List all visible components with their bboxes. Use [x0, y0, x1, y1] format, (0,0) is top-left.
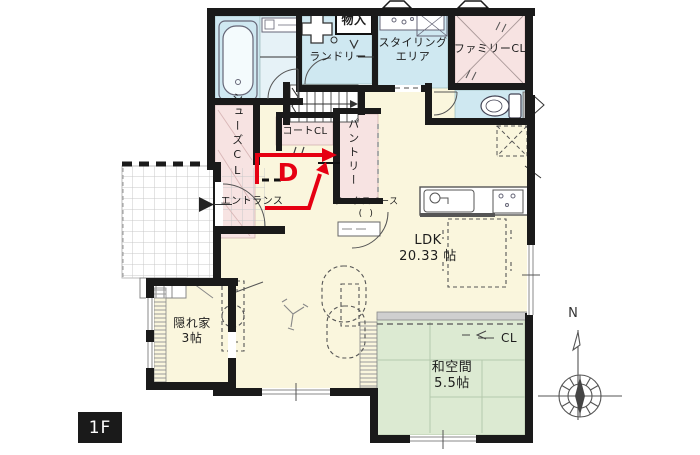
label-ldk: LDK20.33 帖	[399, 233, 457, 266]
label-pantry: パントリー	[346, 118, 360, 188]
label-laundry: ランドリー	[309, 50, 367, 64]
label-workspace: ワークスペース	[333, 197, 398, 208]
floorplan-page: 物入 ランドリー スタイリングエリア ファミリーCL シューズCL コートCL …	[0, 0, 700, 455]
label-styling-area: スタイリングエリア	[379, 36, 448, 64]
north-label: N	[568, 306, 578, 321]
label-entrance: エントランス	[221, 196, 284, 209]
label-japanese-room: 和空間5.5帖	[432, 360, 473, 393]
label-coat-closet: コートCL	[282, 126, 327, 139]
label-hideaway: 隠れ家3帖	[173, 316, 211, 346]
route-marker-d: D	[278, 158, 299, 187]
label-family-closet: ファミリーCL	[454, 42, 526, 56]
floor-badge: 1F	[78, 412, 122, 443]
roof-vents	[383, 1, 488, 8]
floorplan-drawing	[0, 0, 700, 455]
label-shoes-closet: シューズCL	[230, 92, 244, 180]
label-closet: CL	[501, 331, 517, 346]
label-storage: 物入	[341, 13, 366, 28]
compass-icon	[538, 330, 622, 420]
label-workspace-note: ( )	[359, 209, 374, 220]
